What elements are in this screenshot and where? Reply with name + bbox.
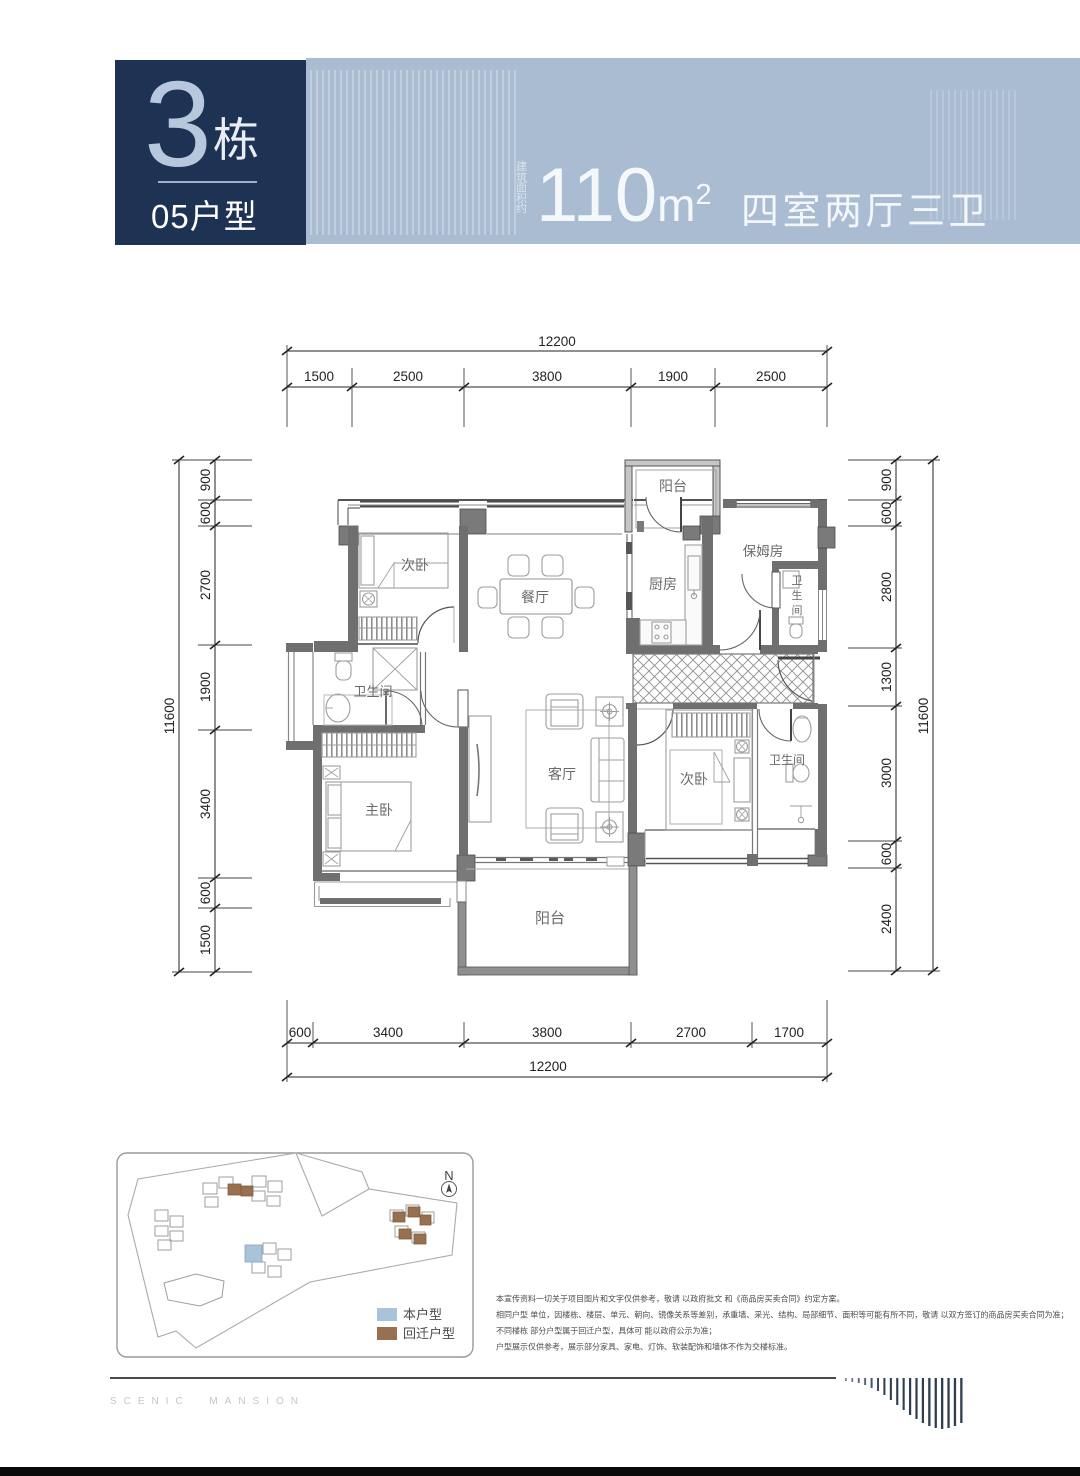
- svg-text:回迁户型: 回迁户型: [403, 1326, 455, 1341]
- svg-text:N: N: [444, 1168, 453, 1183]
- svg-text:本户型: 本户型: [403, 1307, 442, 1322]
